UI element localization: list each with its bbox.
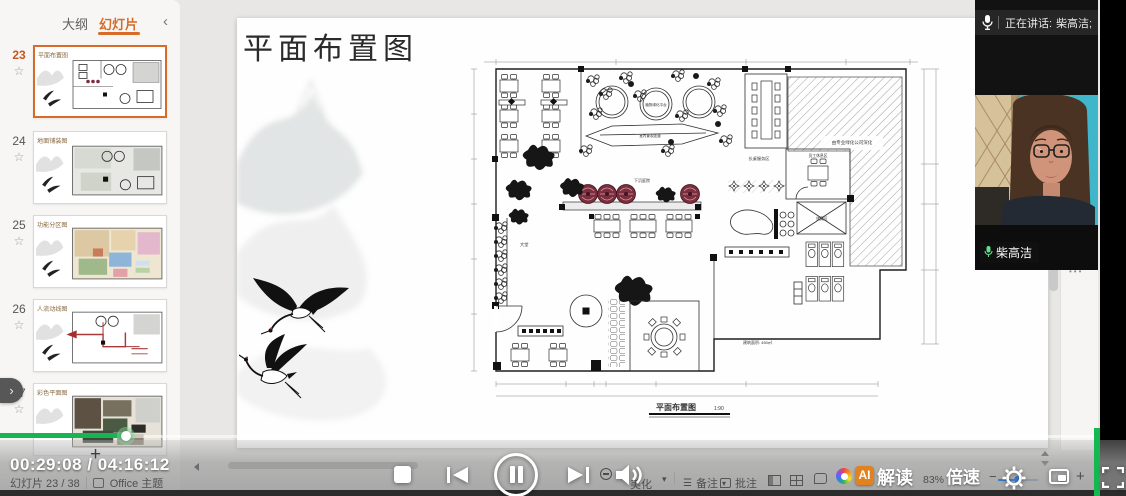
thumb-title: 平面布置图 <box>38 52 68 60</box>
seek-bar-handle[interactable] <box>121 431 131 441</box>
slide-number: 26 <box>8 302 30 316</box>
thumbnail-art: 地面铺装图 <box>34 132 166 203</box>
next-button[interactable] <box>566 465 592 485</box>
green-edge-strip <box>1094 428 1100 496</box>
thumbnail-art: 功能分区图 <box>34 216 166 287</box>
slide-number: 24 <box>8 134 30 148</box>
favorite-star-icon[interactable]: ☆ <box>8 234 30 248</box>
slide-thumbnail-panel: 大纲 幻灯片 ‹ 23 ☆ 平面布置图 <box>0 0 180 496</box>
plan-label-sunken-corridor: 下沉庭院 <box>634 177 650 183</box>
thumbnail-art: 人流动线图 <box>34 300 166 371</box>
seek-bar-track[interactable] <box>0 435 1094 438</box>
letterbox-strip <box>1100 0 1126 496</box>
thumb-title: 彩色平面图 <box>37 389 67 397</box>
theme-label[interactable]: Office 主题 <box>110 475 164 491</box>
tab-slides[interactable]: 幻灯片 <box>99 14 138 33</box>
scroll-left-arrow[interactable] <box>194 463 199 471</box>
playback-time: 00:29:08 / 04:16:12 <box>10 455 170 475</box>
plan-caption: 平面布置图 <box>656 402 696 412</box>
divider <box>998 16 999 29</box>
plan-label-long-table: 长桌服务区 <box>749 155 770 162</box>
webcam-video <box>975 95 1098 225</box>
thumb-title: 地面铺装图 <box>37 137 67 145</box>
horizontal-scrollbar[interactable] <box>228 462 418 469</box>
seek-bar-progress[interactable] <box>0 433 127 438</box>
favorite-star-icon[interactable]: ☆ <box>8 402 30 416</box>
active-tab-underline <box>98 32 140 35</box>
favorite-star-icon[interactable]: ☆ <box>8 150 30 164</box>
plan-label-area: 建筑面积: 450㎡ <box>743 339 772 345</box>
tab-outline[interactable]: 大纲 <box>62 14 88 33</box>
plan-label-neighbor: 由专业绿化公司深化 <box>832 139 873 146</box>
ai-logo-icon[interactable] <box>836 468 852 484</box>
gear-icon[interactable] <box>1001 465 1027 491</box>
zoom-in-plus[interactable]: + <box>1076 468 1085 485</box>
stop-button[interactable] <box>394 466 411 483</box>
plan-label-lobby: 大堂 <box>520 241 528 248</box>
task-pane-strip <box>1060 270 1098 450</box>
participant-name: 柴高洁 <box>996 244 1032 261</box>
divider <box>674 472 675 484</box>
comment-icon <box>720 478 731 488</box>
microphone-icon <box>982 15 993 31</box>
slide-editing-area[interactable]: 平面布置图 <box>237 18 1048 448</box>
time-separator: / <box>87 455 92 474</box>
floor-plan-drawing: 由专业绿化公司深化 长桌服务区 植物绿化平台 <box>466 54 968 420</box>
slide-number: 23 <box>8 48 30 62</box>
crane-art <box>239 276 359 426</box>
slide-number: 25 <box>8 218 30 232</box>
comments-button[interactable]: 批注 <box>720 475 757 491</box>
eye-protection-icon[interactable] <box>600 468 612 480</box>
normal-view-icon[interactable] <box>768 475 781 486</box>
theme-icon <box>93 478 104 488</box>
video-player-frame: 大纲 幻灯片 ‹ 23 ☆ 平面布置图 <box>0 0 1126 496</box>
plan-label-storage: 储藏区 <box>816 216 828 221</box>
slide-counter: 幻灯片 23 / 38 <box>10 475 80 491</box>
total-time: 04:16:12 <box>98 455 170 474</box>
slide-thumbnail-25[interactable]: 功能分区图 <box>33 215 167 288</box>
ai-chip[interactable]: AI <box>855 466 874 485</box>
slide-thumbnail-23[interactable]: 平面布置图 <box>33 45 167 118</box>
participant-name-tag: 柴高洁 <box>980 242 1039 263</box>
speaker-name: 柴高洁; <box>1056 15 1092 31</box>
ai-explain-button[interactable]: 解读 <box>877 464 913 490</box>
thumb-title: 人流动线图 <box>37 305 67 313</box>
slide-thumbnail-26[interactable]: 人流动线图 <box>33 299 167 372</box>
speaking-prefix: 正在讲话: <box>1005 15 1052 31</box>
previous-button[interactable] <box>444 465 470 485</box>
favorite-star-icon[interactable]: ☆ <box>8 64 30 78</box>
caret-down-icon: ▾ <box>662 474 667 485</box>
meeting-video-panel[interactable]: 正在讲话: 柴高洁; <box>975 0 1098 270</box>
speaking-indicator-bar: 正在讲话: 柴高洁; <box>975 10 1098 35</box>
current-time: 00:29:08 <box>10 455 82 474</box>
thumbnail-art: 平面布置图 <box>35 47 165 116</box>
collapse-panel-icon[interactable]: ‹ <box>163 13 168 30</box>
pause-button[interactable] <box>494 453 538 496</box>
plan-label-green-platform: 植物绿化平台 <box>645 102 667 107</box>
microphone-icon <box>984 246 993 259</box>
slide-thumbnail-24[interactable]: 地面铺装图 <box>33 131 167 204</box>
bottom-edge-band <box>0 490 1126 496</box>
status-bar-left: 幻灯片 23 / 38 Office 主题 <box>10 475 163 491</box>
plan-scale: 1:90 <box>714 406 724 412</box>
picture-in-picture-icon[interactable] <box>1049 469 1069 484</box>
zoom-out-minus[interactable]: − <box>989 469 997 484</box>
notes-icon: ☰ <box>683 478 692 489</box>
webcam-name-area: 柴高洁 <box>975 225 1098 270</box>
speed-button[interactable]: 倍速 <box>946 463 980 488</box>
favorite-star-icon[interactable]: ☆ <box>8 318 30 332</box>
thumb-title: 功能分区图 <box>37 221 67 229</box>
fullscreen-icon[interactable] <box>1102 467 1124 488</box>
speech-bubble-icon[interactable] <box>814 473 827 484</box>
volume-icon[interactable] <box>614 462 644 488</box>
plan-label-walkway: 室内景观走道 <box>639 133 661 138</box>
plan-label-staff-room: 员工休息区 <box>809 153 828 158</box>
grid-view-icon[interactable] <box>790 475 803 486</box>
zoom-level: 83% <box>923 474 944 486</box>
divider <box>86 477 87 489</box>
